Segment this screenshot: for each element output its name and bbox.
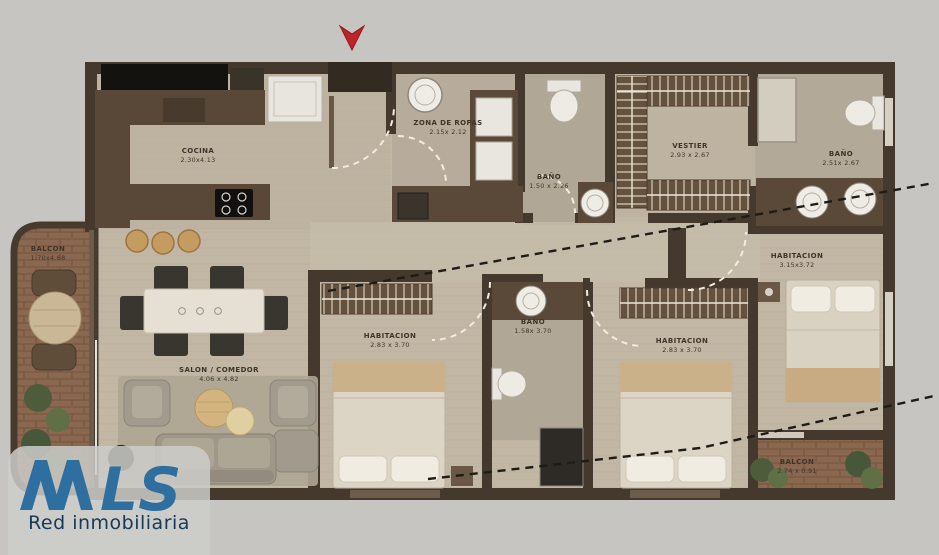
logo-ls-text: LS	[100, 455, 181, 518]
logo-tagline: Red inmobiliaria	[28, 514, 190, 533]
cooktop-icon	[215, 189, 253, 217]
outdoor-chair	[32, 344, 76, 370]
laundry-sink	[398, 193, 428, 219]
sink-icon	[796, 186, 828, 218]
armchair	[274, 430, 318, 472]
mls-logo-panel: LS Red inmobiliaria	[8, 446, 210, 555]
toilet-icon	[498, 371, 526, 397]
bed	[620, 362, 732, 488]
plant-icon	[768, 468, 788, 488]
toilet-icon	[845, 100, 875, 126]
entrance-arrow-icon	[340, 26, 364, 50]
washer-icon	[408, 78, 442, 112]
kitchen-sink	[163, 98, 205, 122]
plant-icon	[861, 467, 883, 489]
shower	[540, 428, 583, 486]
shower	[758, 78, 796, 142]
appliance	[476, 98, 512, 136]
bar-stools	[126, 230, 200, 254]
pillow	[835, 286, 875, 312]
pillow	[678, 456, 726, 482]
pillow	[339, 456, 387, 482]
toilet-icon	[550, 90, 578, 122]
outdoor-table	[29, 292, 81, 344]
armchair	[124, 380, 170, 426]
mls-logo: LS	[14, 446, 204, 518]
sink-icon	[844, 183, 876, 215]
appliance	[476, 142, 512, 180]
pillow	[626, 456, 674, 482]
bed	[786, 280, 880, 402]
pillow	[791, 286, 831, 312]
bed	[333, 362, 445, 488]
sink-icon	[516, 286, 546, 316]
sink-icon	[581, 189, 609, 217]
dining-table	[144, 289, 264, 333]
armchair	[270, 380, 316, 426]
logo-m-glyph	[20, 460, 93, 510]
kitchen-counter-left	[95, 90, 130, 228]
bedroom-3	[620, 288, 748, 488]
floor-plan-page: COCINA 2.30x4.13 ZONA DE ROPAS 2.15x 2.1…	[0, 0, 939, 555]
coffee-table	[226, 407, 254, 435]
fridge	[268, 76, 322, 122]
